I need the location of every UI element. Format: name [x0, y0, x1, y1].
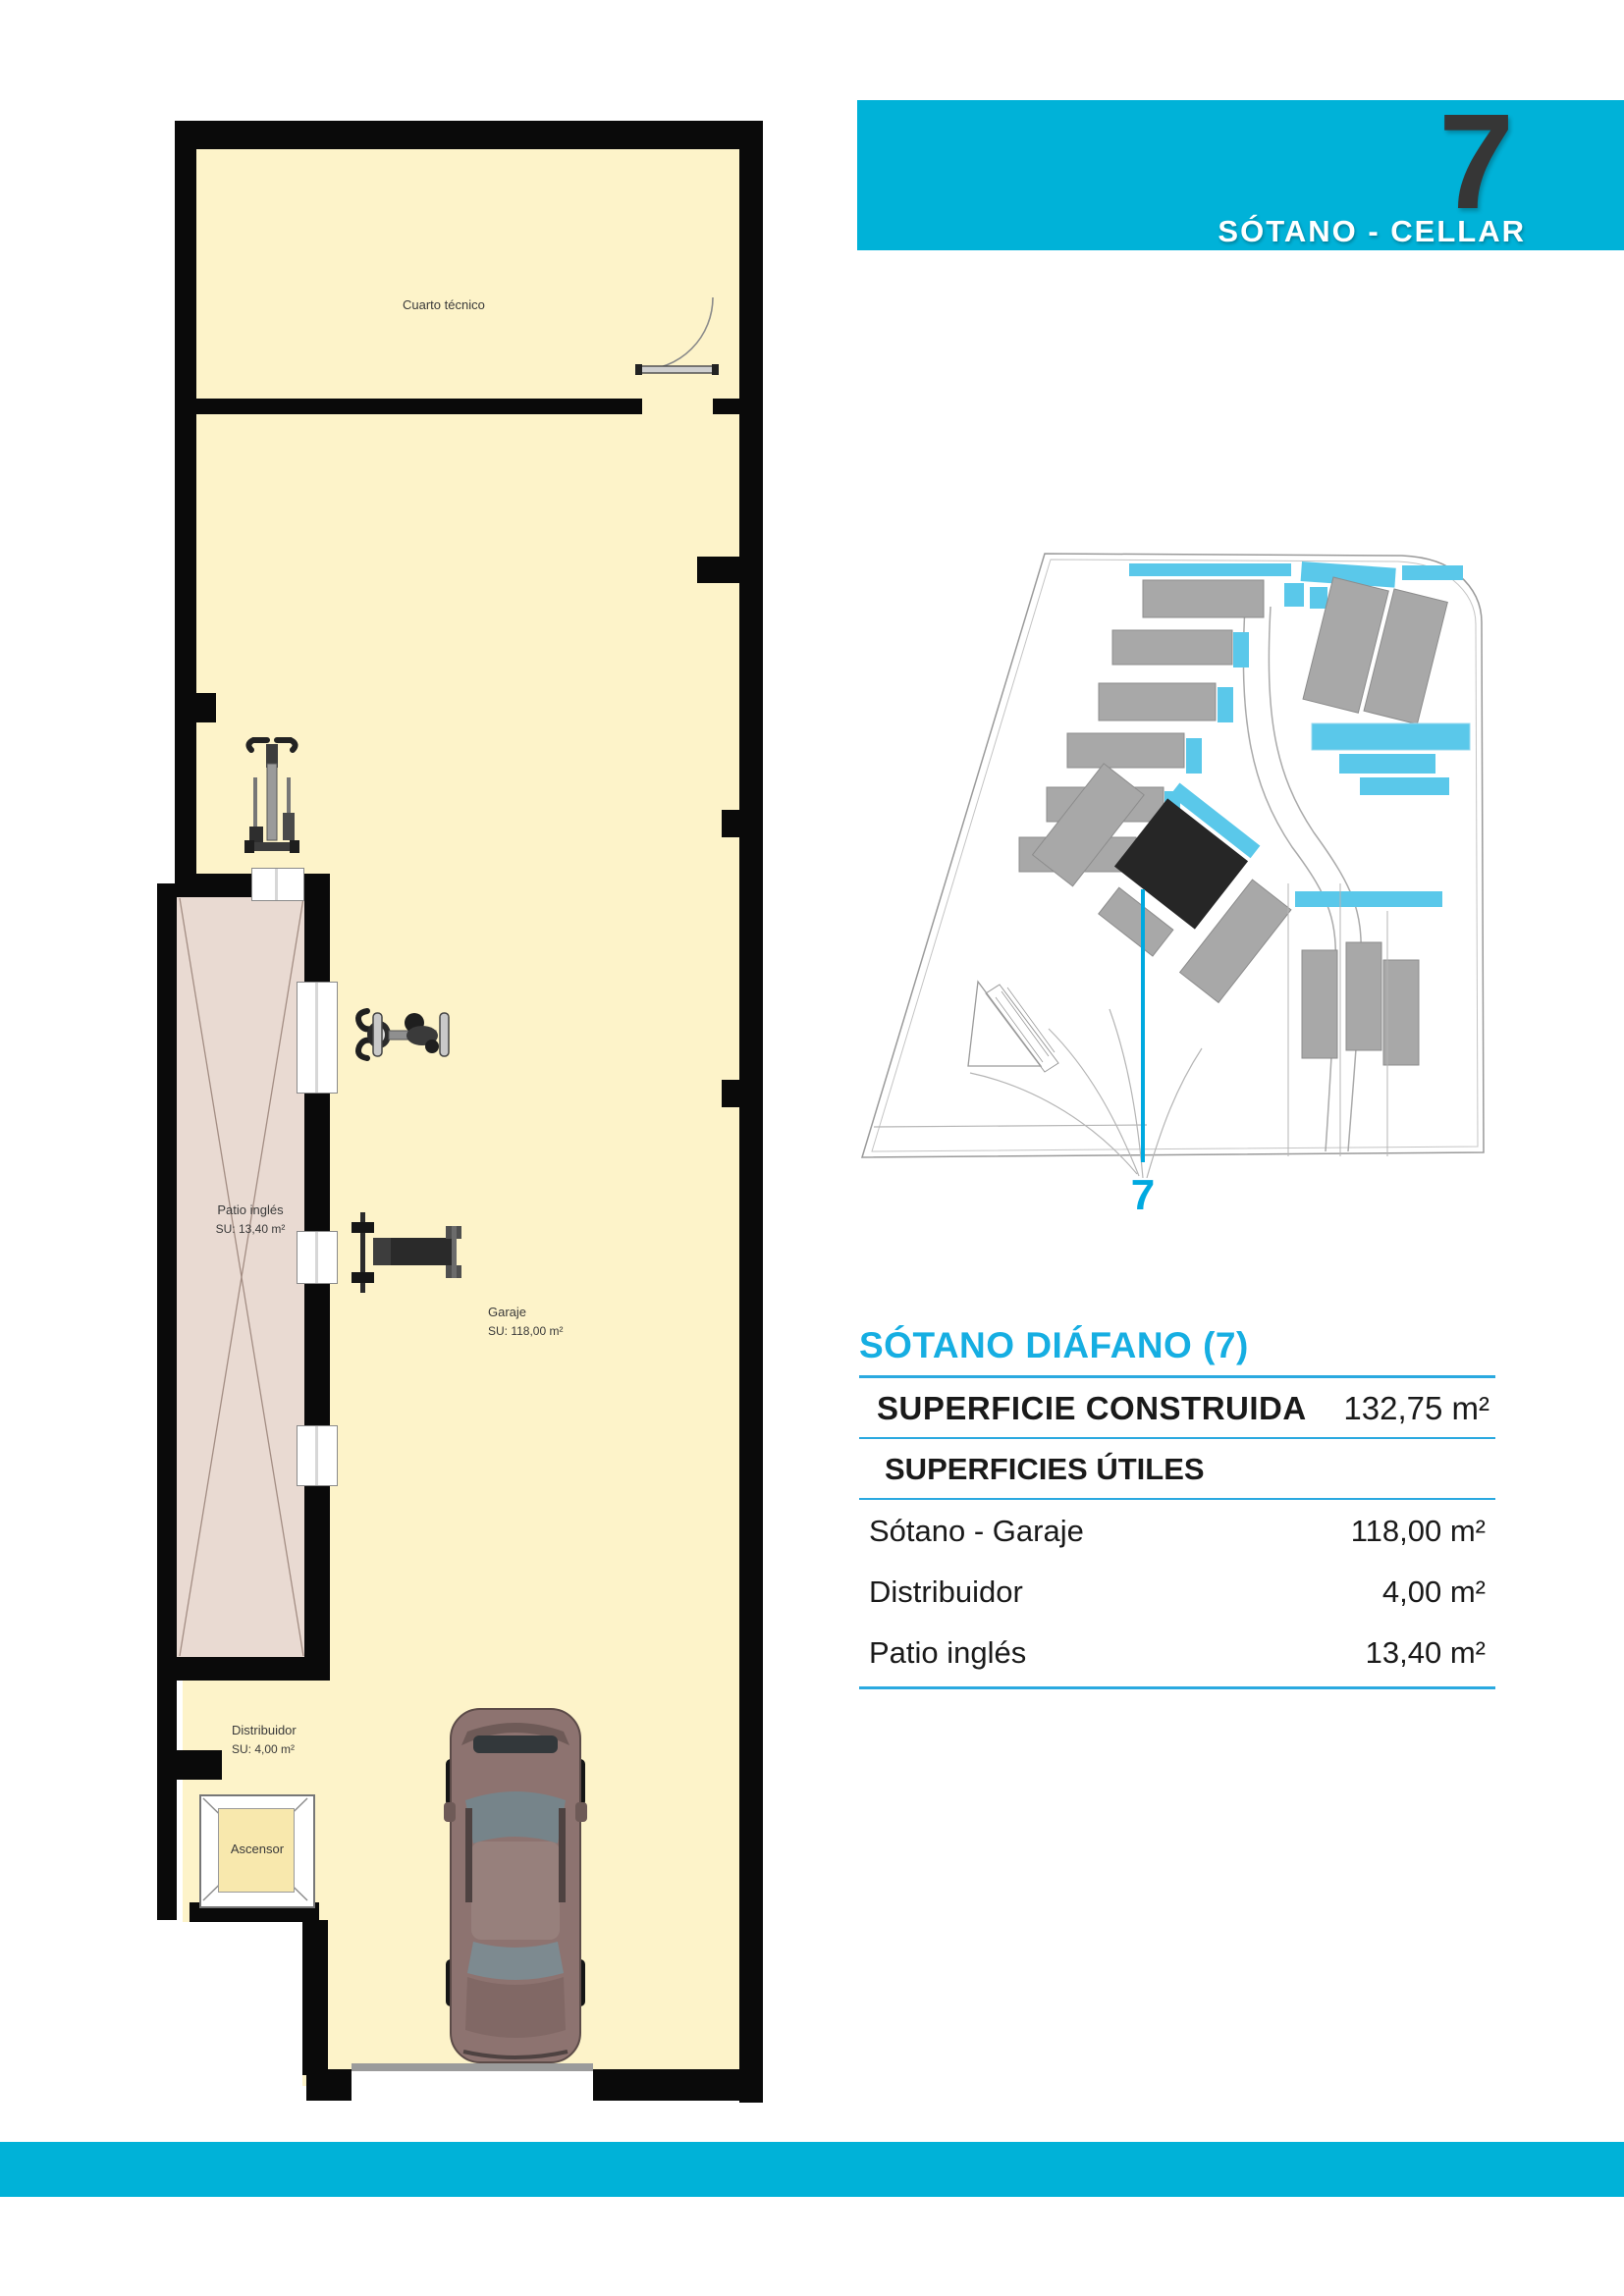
wall	[739, 121, 763, 2103]
wall	[306, 2069, 353, 2101]
elevator-shaft: Ascensor	[199, 1794, 315, 1908]
table-row: Sótano - Garaje 118,00 m²	[859, 1500, 1495, 1561]
wall	[302, 1920, 328, 2075]
page-title: SÓTANO - CELLAR	[1218, 214, 1526, 249]
header-band: 7 SÓTANO - CELLAR	[857, 100, 1624, 250]
row-value: 4,00 m²	[1382, 1575, 1486, 1610]
room-label-patio: Patio inglés SU: 13,40 m²	[192, 1200, 308, 1240]
row-label: Patio inglés	[869, 1635, 1026, 1671]
footer-band	[0, 2142, 1624, 2197]
exercise-bike-icon	[353, 1003, 465, 1066]
wall	[175, 121, 196, 896]
wall-pillar	[722, 810, 739, 837]
patio-hatch	[177, 895, 306, 1659]
wall-pillar	[722, 1080, 739, 1107]
room-label-ascensor: Ascensor	[201, 1842, 313, 1856]
wall-pillar	[697, 557, 739, 583]
room-label-cuarto-tecnico: Cuarto técnico	[403, 294, 485, 315]
window	[297, 1425, 338, 1486]
site-plan: 7	[852, 538, 1492, 1217]
row-label: Distribuidor	[869, 1575, 1023, 1610]
room-label-garaje: Garaje SU: 118,00 m²	[488, 1302, 563, 1342]
wall	[157, 1750, 222, 1780]
wall	[591, 2069, 763, 2101]
bench-press-icon	[350, 1210, 467, 1295]
wall-pillar	[194, 693, 216, 722]
wall	[175, 121, 763, 149]
table-row: Distribuidor 4,00 m²	[859, 1561, 1495, 1622]
stepper-machine-icon	[244, 736, 300, 856]
room-label-distribuidor: Distribuidor SU: 4,00 m²	[232, 1720, 297, 1760]
unit-number: 7	[1438, 94, 1514, 230]
car-icon	[444, 1706, 587, 2069]
row-value: 13,40 m²	[1366, 1635, 1486, 1671]
useful-surfaces-header: SUPERFICIES ÚTILES	[859, 1439, 1495, 1498]
row-value: 118,00 m²	[1351, 1514, 1486, 1549]
door-swing-icon	[633, 291, 756, 384]
row-label: Sótano - Garaje	[869, 1514, 1084, 1549]
wall	[185, 399, 642, 414]
constructed-label: SUPERFICIE CONSTRUIDA	[877, 1390, 1307, 1427]
window	[297, 982, 338, 1094]
brochure-page: Ascensor	[0, 0, 1624, 2296]
site-unit-marker: 7	[1131, 1171, 1155, 1217]
wall	[157, 1657, 330, 1681]
table-row: Patio inglés 13,40 m²	[859, 1622, 1495, 1682]
constructed-value: 132,75 m²	[1343, 1390, 1489, 1427]
surface-table: SÓTANO DIÁFANO (7) SUPERFICIE CONSTRUIDA…	[859, 1325, 1495, 1689]
window	[251, 868, 304, 901]
table-title: SÓTANO DIÁFANO (7)	[859, 1325, 1495, 1366]
constructed-row: SUPERFICIE CONSTRUIDA 132,75 m²	[859, 1378, 1495, 1437]
